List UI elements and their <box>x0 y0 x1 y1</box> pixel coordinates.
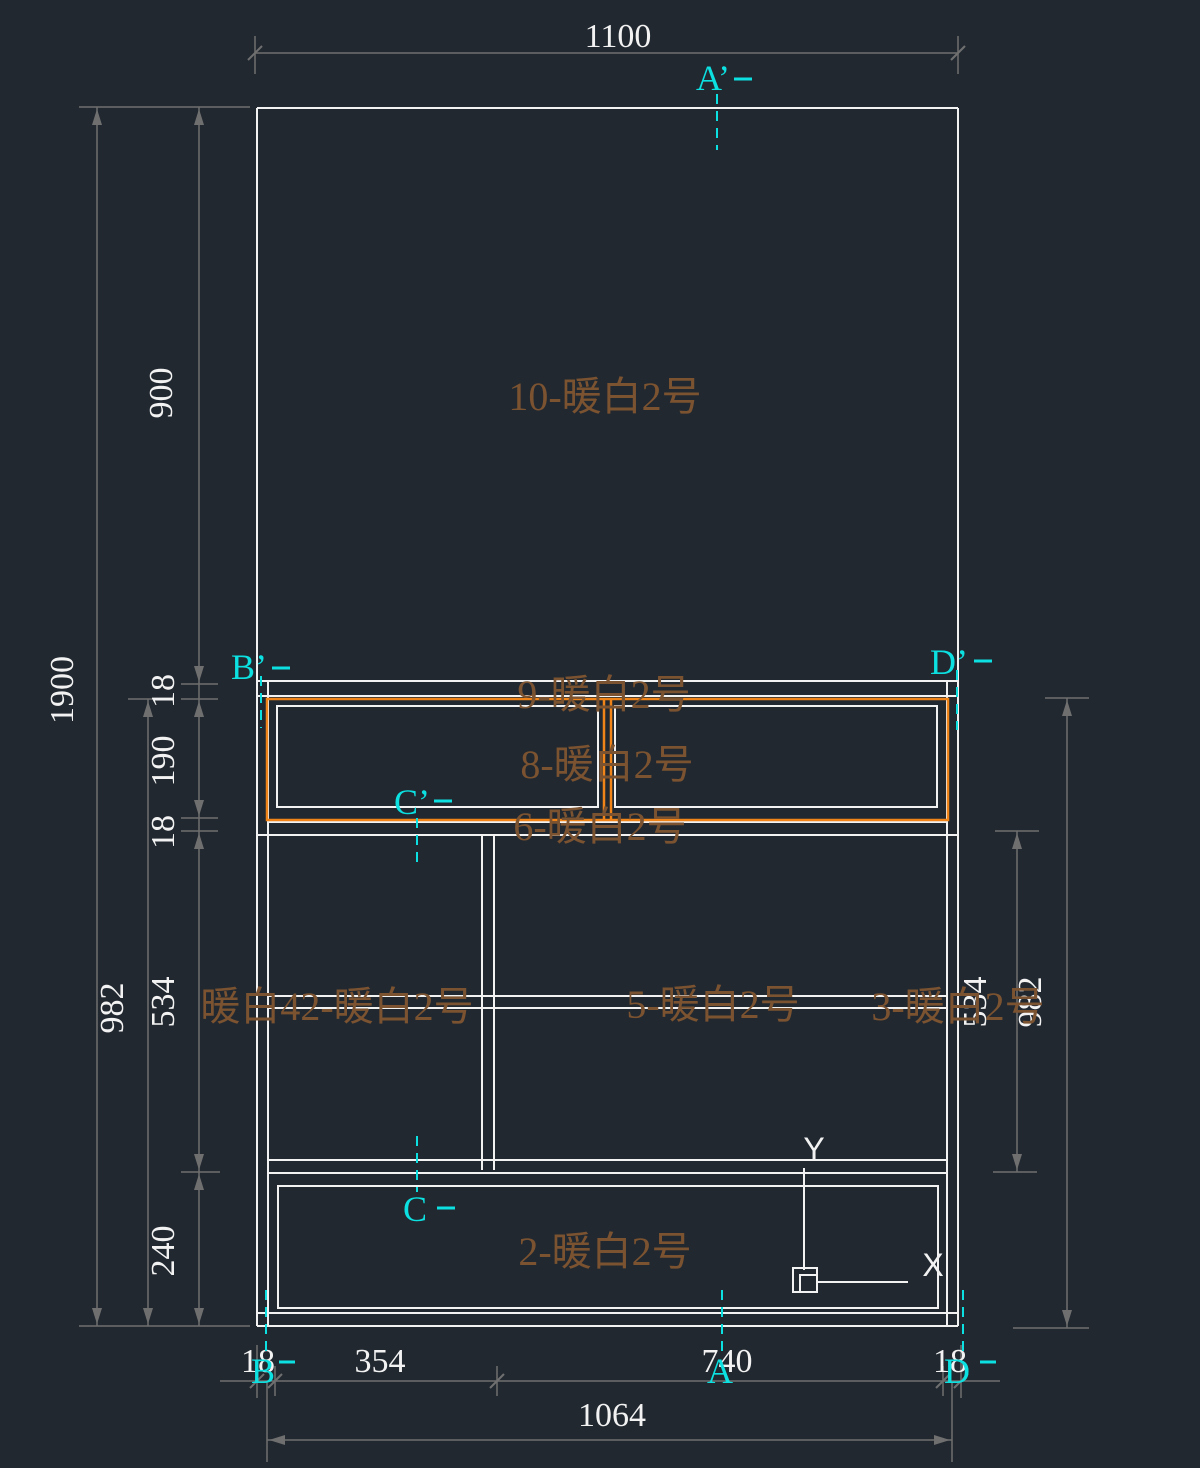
section-marker-c-top[interactable]: C’ <box>394 782 430 822</box>
dim-shelf-top: 18 <box>145 674 182 708</box>
ucs-origin-box <box>793 1268 817 1292</box>
dim-total-height: 1900 <box>44 656 81 724</box>
panel-label-9: 9-暖白2号 <box>517 672 690 717</box>
dim-mid-section-left: 534 <box>145 977 182 1028</box>
panel-labels: 10-暖白2号 9-暖白2号 8-暖白2号 6-暖白2号 暖白42-暖白2号 5… <box>200 374 1044 1274</box>
section-marker-b-top[interactable]: B’ <box>231 647 267 687</box>
section-marker-a-bottom[interactable]: A <box>707 1351 733 1391</box>
panel-label-3: 3-暖白2号 <box>871 984 1044 1029</box>
dim-upper-height: 900 <box>143 368 180 419</box>
dim-bottom-left-bay: 354 <box>355 1343 406 1380</box>
dim-cabinet-height-left: 982 <box>94 983 131 1034</box>
dim-base-section: 240 <box>145 1226 182 1277</box>
section-markers[interactable]: A’ B’ C’ D’ C B A D <box>231 58 996 1391</box>
ucs-y-axis-label: Y <box>803 1131 824 1167</box>
dim-shelf-bottom: 18 <box>145 815 182 849</box>
section-marker-d-bottom[interactable]: D <box>944 1351 970 1391</box>
cabinet-geometry[interactable] <box>257 108 958 1326</box>
panel-label-5: 5-暖白2号 <box>626 982 799 1027</box>
panel-label-6: 6-暖白2号 <box>513 804 686 849</box>
panel-label-8: 8-暖白2号 <box>520 742 693 787</box>
section-marker-c-bottom[interactable]: C <box>403 1189 427 1229</box>
panel-label-4: 暖白42-暖白2号 <box>200 984 473 1029</box>
panel-label-10: 10-暖白2号 <box>508 374 701 419</box>
section-marker-a-top[interactable]: A’ <box>696 58 730 98</box>
ucs-x-axis-label: X <box>922 1247 943 1283</box>
panel-label-2: 2-暖白2号 <box>518 1229 691 1274</box>
cad-drawing-canvas[interactable]: 1100 1900 900 18 190 18 982 534 240 534 … <box>0 0 1200 1468</box>
section-marker-b-bottom[interactable]: B <box>251 1351 275 1391</box>
ucs-icon: Y X <box>793 1131 944 1292</box>
dim-top-width: 1100 <box>585 18 652 55</box>
section-marker-d-top[interactable]: D’ <box>930 642 968 682</box>
dimension-texts: 1100 1900 900 18 190 18 982 534 240 534 … <box>44 18 1049 1434</box>
dim-bottom-inner-width: 1064 <box>578 1397 646 1434</box>
dim-shelf-opening: 190 <box>145 736 182 787</box>
